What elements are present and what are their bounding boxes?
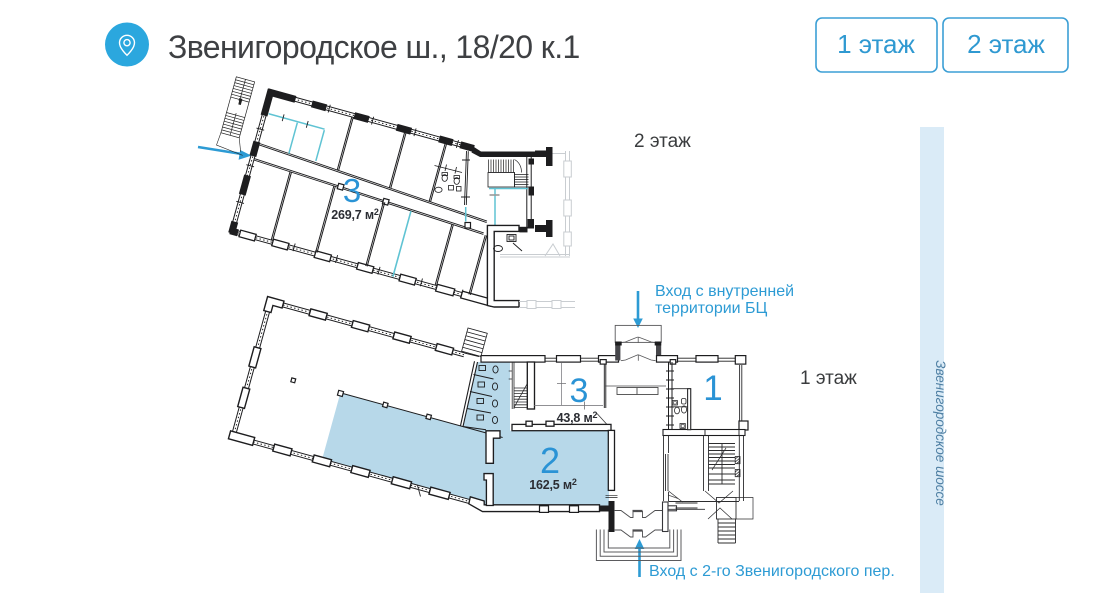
svg-text:Вход с внутренней: Вход с внутренней bbox=[655, 283, 794, 300]
svg-text:3: 3 bbox=[570, 372, 589, 410]
svg-text:3: 3 bbox=[343, 172, 361, 209]
svg-text:162,5 м2: 162,5 м2 bbox=[529, 477, 577, 492]
svg-text:43,8 м2: 43,8 м2 bbox=[557, 410, 598, 425]
svg-text:1 этаж: 1 этаж bbox=[837, 29, 915, 59]
svg-text:1: 1 bbox=[703, 369, 722, 408]
svg-text:2 этаж: 2 этаж bbox=[967, 29, 1045, 59]
svg-text:2 этаж: 2 этаж bbox=[634, 131, 691, 152]
svg-text:2: 2 bbox=[540, 440, 560, 481]
svg-text:269,7 м2: 269,7 м2 bbox=[331, 207, 379, 222]
svg-text:территории БЦ: территории БЦ bbox=[655, 300, 768, 317]
svg-text:1 этаж: 1 этаж bbox=[800, 368, 857, 389]
svg-text:Вход с 2-го Звенигородского пе: Вход с 2-го Звенигородского пер. bbox=[649, 563, 895, 580]
svg-text:Звенигородское ш., 18/20 к.1: Звенигородское ш., 18/20 к.1 bbox=[168, 29, 580, 65]
svg-text:Звенигородское шоссе: Звенигородское шоссе bbox=[933, 360, 948, 506]
